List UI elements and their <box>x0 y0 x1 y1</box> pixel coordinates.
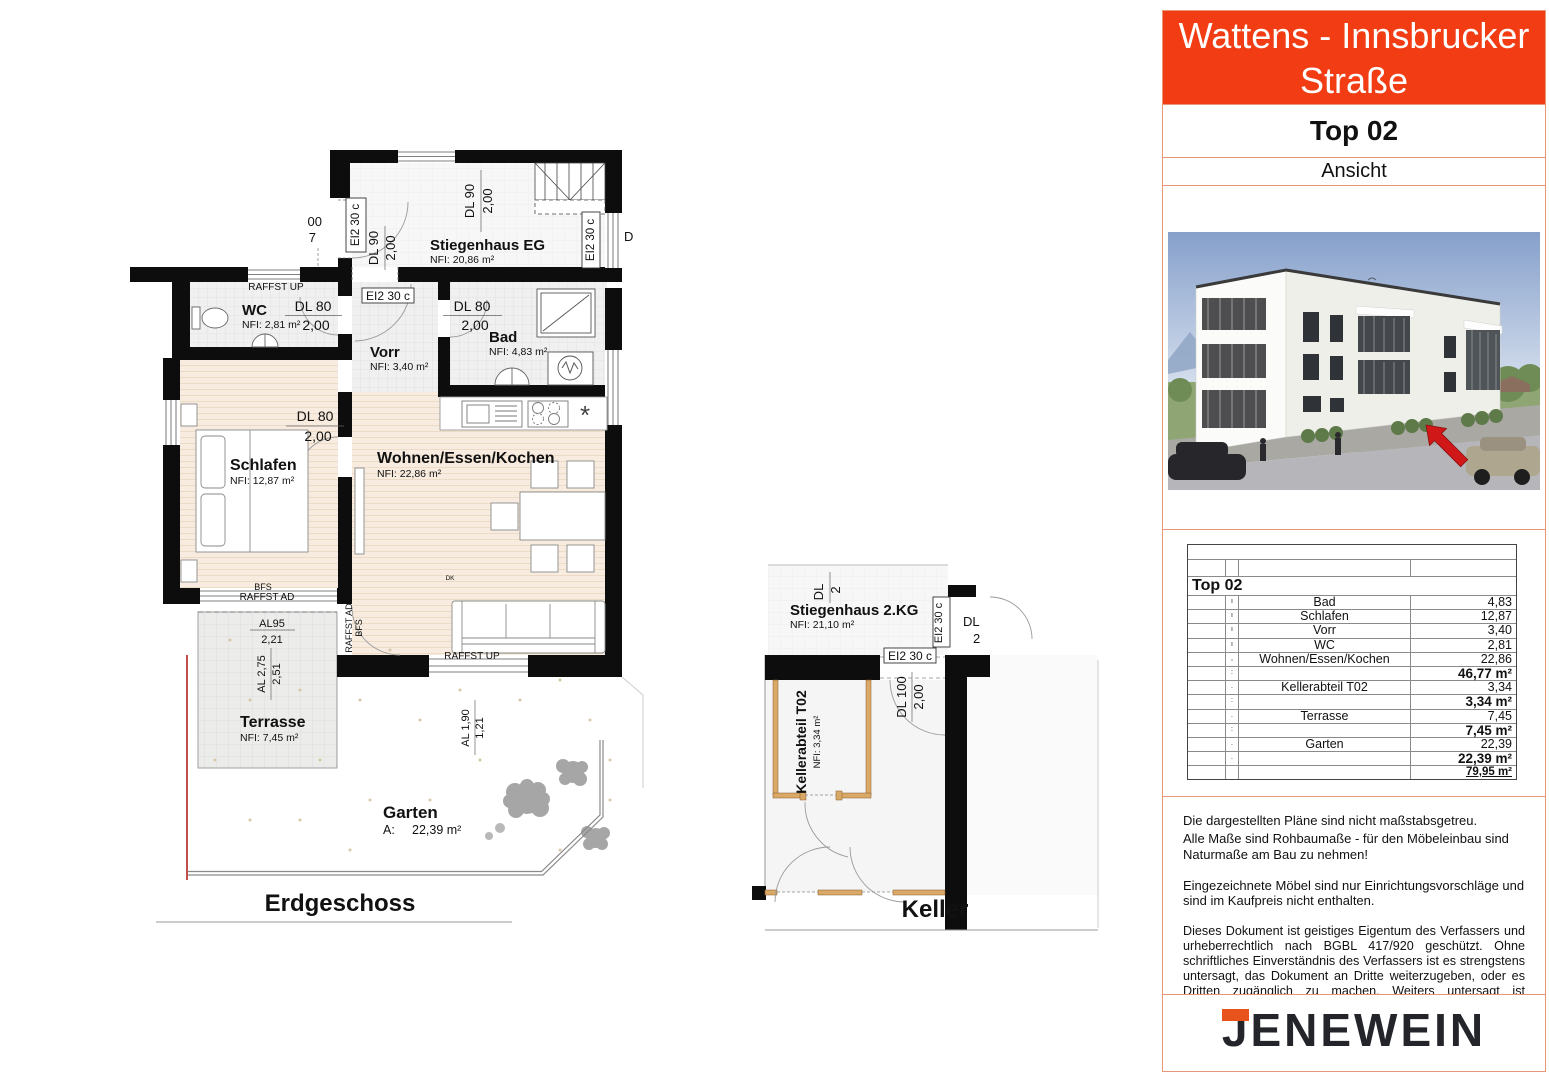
row-name: Schlafen <box>1239 610 1411 623</box>
room-label-schlafen: Schlafen <box>230 457 297 474</box>
table-subtotal-row: .22,39 m² <box>1188 752 1516 766</box>
dim-raffst-ad-vert: RAFFST AD <box>344 603 354 653</box>
logo-text: JENEWEIN <box>1222 1004 1486 1056</box>
row-value: 7,45 <box>1411 710 1516 723</box>
row-name: Kellerabteil T02 <box>1239 681 1411 694</box>
dim-raffst-ad: RAFFST AD <box>240 592 295 603</box>
table-row: .Kellerabteil T023,34 <box>1188 681 1516 695</box>
row-tick: ı <box>1226 639 1239 652</box>
dim-ei2-left-box: EI2 30 c <box>350 204 362 246</box>
tv-board <box>355 468 364 554</box>
dim-ei2-vorr-box: EI2 30 c <box>366 289 410 303</box>
dim-cut-2-right: 2 <box>973 631 980 646</box>
kitchen-sink <box>462 401 522 427</box>
table-row <box>1188 545 1516 560</box>
row-tick: . <box>1226 752 1239 765</box>
room-label-stiegenhaus-kg: Stiegenhaus 2.KG <box>790 602 918 619</box>
row-value: 7,45 m² <box>1411 724 1516 737</box>
row-value: 3,40 <box>1411 624 1516 637</box>
row-tick <box>1188 545 1226 559</box>
row-name <box>1226 560 1239 576</box>
row-name: Garten <box>1239 738 1411 751</box>
dim-121: 1,21 <box>474 717 486 738</box>
row-value: 2,81 <box>1411 639 1516 652</box>
room-label-garten: Garten <box>383 803 438 822</box>
chair <box>567 461 594 488</box>
row-value: 3,34 m² <box>1411 695 1516 708</box>
shrub <box>485 832 493 840</box>
row-value: 22,39 <box>1411 738 1516 751</box>
eg-floor-plan: Stiegenhaus EG NFI: 20,86 m² WC NFI: 2,8… <box>130 150 643 922</box>
row-value: 22,86 <box>1411 653 1516 666</box>
info-panel: Wattens - Innsbrucker Straße Top 02 Ansi… <box>1162 10 1546 1072</box>
row-value: 22,39 m² <box>1411 752 1516 765</box>
kg-right-room-floor <box>967 655 1098 895</box>
row-value <box>1239 560 1411 576</box>
row-tick: , <box>1226 653 1239 666</box>
room-area-wohnen: NFI: 22,86 m² <box>377 468 442 480</box>
dim-cut-dl-left: DL <box>811 584 826 601</box>
area-table-section: Top 02 ıBad4,83 ıSchlafen12,87 ıVorr3,40… <box>1163 530 1545 797</box>
room-label-wc: WC <box>242 302 267 319</box>
note-copyright: Dieses Dokument ist geistiges Eigentum d… <box>1183 924 1525 995</box>
row-value <box>1239 545 1411 559</box>
row-tick: ı <box>1226 610 1239 623</box>
dim-cut-2-left: 2 <box>828 586 843 593</box>
washing-machine <box>548 352 593 385</box>
dim-cut-dl-right: DL <box>963 614 980 629</box>
note-furniture: Eingezeichnete Möbel sind nur Einrichtun… <box>1183 878 1525 910</box>
eg-plan-title: Erdgeschoss <box>265 890 416 917</box>
view-label: Ansicht <box>1163 158 1545 186</box>
room-label-wohnen: Wohnen/Essen/Kochen <box>377 450 555 467</box>
dim-cut-00: 00 <box>308 214 322 229</box>
balcony <box>1202 298 1266 428</box>
row-name: WC <box>1239 639 1411 652</box>
row-tick <box>1226 766 1239 779</box>
dim-bfs: BFS <box>254 582 272 592</box>
room-area-garten: 22,39 m² <box>412 823 461 837</box>
dim-200-left: 2,00 <box>383 235 398 260</box>
room-label-kellerabteil: Kellerabteil T02 <box>793 690 809 794</box>
row-tick: : <box>1226 667 1239 680</box>
room-label-terrasse: Terrasse <box>240 714 306 731</box>
dim-dl90-left: DL 90 <box>366 231 381 265</box>
table-subtotal-row: :7,45 m² <box>1188 724 1516 738</box>
dim-ei2-kg-vert: EI2 30 c <box>933 602 945 643</box>
dim-cut-7: 7 <box>309 230 316 245</box>
dim-ei2-kg-box: EI2 30 c <box>888 649 932 663</box>
bed <box>196 430 308 552</box>
disclaimer-section: Die dargestellten Pläne sind nicht maßst… <box>1163 797 1545 995</box>
tree <box>503 779 550 818</box>
area-table: Top 02 ıBad4,83 ıSchlafen12,87 ıVorr3,40… <box>1187 544 1517 780</box>
row-name: Wohnen/Essen/Kochen <box>1239 653 1411 666</box>
row-name: Bad <box>1239 596 1411 609</box>
tree <box>556 759 588 786</box>
dim-al95: AL95 <box>259 618 285 630</box>
room-area-terrasse: NFI: 7,45 m² <box>240 732 299 744</box>
row-tick: . <box>1226 738 1239 751</box>
dim-ei2-right-box: EI2 30 c <box>585 219 597 261</box>
dim-dl80-schlafen: DL 80 <box>297 408 334 424</box>
room-area-bad: NFI: 4,83 m² <box>489 346 548 358</box>
row-tick: ı <box>1226 624 1239 637</box>
door-arc <box>990 597 1032 639</box>
table-row: .Terrasse7,45 <box>1188 710 1516 724</box>
room-area-kellerabteil: NFI: 3,34 m² <box>812 716 823 769</box>
company-logo: JENEWEIN <box>1222 1007 1486 1053</box>
row-value: 4,83 <box>1411 596 1516 609</box>
chair <box>531 545 558 572</box>
room-area-schlafen: NFI: 12,87 m² <box>230 475 295 487</box>
dim-200-top: 2,00 <box>480 188 495 213</box>
table-row: ıBad4,83 <box>1188 596 1516 610</box>
dim-dl90-top: DL 90 <box>462 184 477 218</box>
building-photo-section <box>1163 186 1545 530</box>
dim-200-bad: 2,00 <box>461 317 488 333</box>
room-label-bad: Bad <box>489 329 517 346</box>
room-area-wc: NFI: 2,81 m² <box>242 319 301 331</box>
nightstand <box>181 560 197 582</box>
dim-bfs-vert: BFS <box>354 619 364 637</box>
toilet <box>192 307 228 329</box>
row-value: 46,77 m² <box>1411 667 1516 680</box>
row-name <box>1239 766 1411 779</box>
room-label-stiegenhaus-eg: Stiegenhaus EG <box>430 237 545 254</box>
building-photo <box>1168 232 1540 490</box>
kg-plan-title: Keller <box>902 896 969 923</box>
plot-boundary-line <box>622 677 643 788</box>
table-row: .Garten22,39 <box>1188 738 1516 752</box>
row-tick: ı <box>1226 596 1239 609</box>
table-row: ıSchlafen12,87 <box>1188 610 1516 624</box>
nightstand <box>181 404 197 426</box>
table-row: ,Wohnen/Essen/Kochen22,86 <box>1188 653 1516 667</box>
table-group-row: Top 02 <box>1188 577 1516 596</box>
table-row: ıVorr3,40 <box>1188 624 1516 638</box>
row-name <box>1239 695 1411 708</box>
room-area-stiegenhaus-kg: NFI: 21,10 m² <box>790 619 855 631</box>
floorplan-sheet: Stiegenhaus EG NFI: 20,86 m² WC NFI: 2,8… <box>0 0 1549 1080</box>
shower <box>537 289 595 337</box>
row-value: 3,34 <box>1411 681 1516 694</box>
dim-raffst-up-bottom: RAFFST UP <box>444 651 500 662</box>
dim-cut-d: D <box>624 229 633 244</box>
row-tick: : <box>1226 695 1239 708</box>
row-name <box>1239 752 1411 765</box>
dim-200-wc: 2,00 <box>302 317 329 333</box>
row-name <box>1239 667 1411 680</box>
row-name <box>1226 545 1239 559</box>
row-tick: . <box>1226 710 1239 723</box>
row-name: Vorr <box>1239 624 1411 637</box>
note-scale: Die dargestellten Pläne sind nicht maßst… <box>1183 813 1525 829</box>
note-measures: Alle Maße sind Rohbaumaße - für den Möbe… <box>1183 831 1525 863</box>
kg-corridor-floor <box>765 680 945 892</box>
room-area-stiegenhaus-eg: NFI: 20,86 m² <box>430 254 495 266</box>
row-value: 12,87 <box>1411 610 1516 623</box>
dim-200-schlafen: 2,00 <box>304 428 331 444</box>
unit-title: Top 02 <box>1163 105 1545 158</box>
room-area-vorr: NFI: 3,40 m² <box>370 361 429 373</box>
row-tick <box>1188 560 1226 576</box>
dim-dl80-bad: DL 80 <box>454 298 491 314</box>
table-row: ıWC2,81 <box>1188 639 1516 653</box>
dim-raffst-up-top: RAFFST UP <box>248 282 304 293</box>
row-name <box>1239 724 1411 737</box>
dim-200-kg: 2,00 <box>911 684 926 709</box>
dim-251: 2,51 <box>271 663 283 684</box>
logo-section: JENEWEIN <box>1163 995 1545 1073</box>
stove <box>528 401 568 427</box>
dim-al275: AL 2,75 <box>256 655 268 693</box>
room-area-garten-prefix: A: <box>383 823 395 837</box>
room-label-vorr: Vorr <box>370 344 400 361</box>
table-subtotal-row: :46,77 m² <box>1188 667 1516 681</box>
chair <box>491 503 518 530</box>
table-total-row: 79,95 m² <box>1188 766 1516 779</box>
keller-floor-plan: Stiegenhaus 2.KG NFI: 21,10 m² Kellerabt… <box>752 565 1098 930</box>
table-row <box>1188 560 1516 577</box>
stairs <box>535 163 605 214</box>
dim-dk: DK <box>445 575 455 582</box>
logo-j-bar <box>1222 1009 1249 1021</box>
project-title: Wattens - Innsbrucker Straße <box>1163 11 1545 105</box>
dim-dl80-wc: DL 80 <box>295 298 332 314</box>
table-subtotal-row: :3,34 m² <box>1188 695 1516 709</box>
dim-221: 2,21 <box>261 634 282 646</box>
row-tick: . <box>1226 681 1239 694</box>
dim-al190: AL 1,90 <box>460 709 472 747</box>
row-tick: : <box>1226 724 1239 737</box>
row-name: Terrasse <box>1239 710 1411 723</box>
plans-drawing: Stiegenhaus EG NFI: 20,86 m² WC NFI: 2,8… <box>0 0 1160 1080</box>
shrub <box>495 823 505 833</box>
row-value: 79,95 m² <box>1411 766 1516 779</box>
dim-dl100: DL 100 <box>894 676 909 717</box>
fridge-star-symbol: * <box>580 400 590 430</box>
sofa <box>452 601 605 653</box>
chair <box>567 545 594 572</box>
